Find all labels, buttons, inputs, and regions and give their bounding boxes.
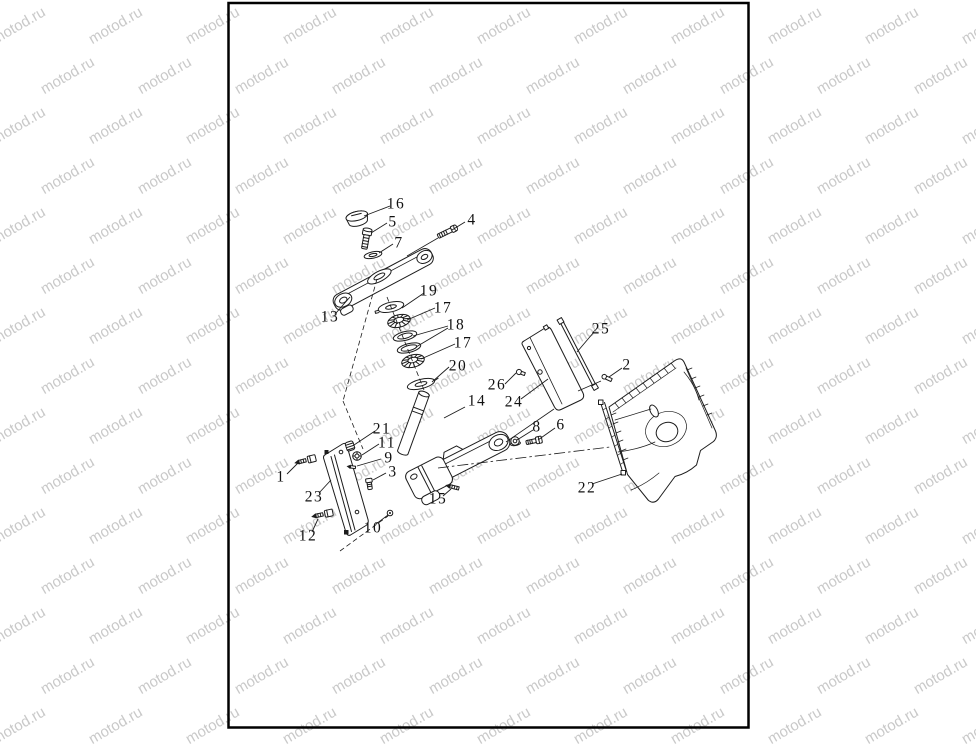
part-3 [365, 478, 373, 490]
part-label-22: 22 [578, 480, 597, 497]
part-label-14: 14 [468, 393, 487, 410]
exploded-diagram: 1654713191718172025226241486211193123152… [0, 0, 976, 732]
part-label-6: 6 [556, 417, 565, 434]
part-label-4: 4 [467, 212, 476, 229]
part-7 [364, 250, 383, 260]
part-12 [310, 509, 333, 520]
part-label-5: 5 [388, 214, 397, 231]
part-label-24: 24 [505, 394, 524, 411]
callout-leader-line [432, 367, 449, 382]
part-label-12: 12 [299, 528, 318, 545]
part-label-26: 26 [488, 377, 507, 394]
part-4 [437, 224, 459, 239]
callout-leader-line [609, 368, 622, 377]
part-label-10: 10 [364, 520, 383, 537]
callout-leader-line [407, 308, 435, 320]
part-label-18: 18 [447, 317, 466, 334]
part-label-15: 15 [429, 491, 448, 508]
part-labels-layer: 1654713191718172025226241486211193123152… [276, 196, 631, 545]
part-label-20: 20 [449, 358, 468, 375]
part-label-1: 1 [276, 469, 285, 486]
callout-leader-line [444, 407, 465, 418]
part-label-25: 25 [592, 321, 611, 338]
part-24 [522, 325, 584, 410]
callout-leader-line [287, 463, 298, 474]
part-label-13: 13 [321, 309, 340, 326]
part-6 [525, 436, 542, 446]
part-label-17: 17 [434, 300, 453, 317]
part-16 [345, 209, 370, 228]
callout-leader-line [505, 373, 516, 384]
callout-leader-line [521, 379, 548, 399]
part-label-23: 23 [305, 489, 324, 506]
part-10 [387, 510, 393, 516]
part-label-19: 19 [420, 283, 439, 300]
part-label-3: 3 [388, 464, 397, 481]
part-2 [601, 374, 612, 383]
callout-leader-line [357, 459, 381, 466]
callout-leader-line [362, 444, 379, 455]
part-17 [400, 352, 425, 370]
callout-leader-line [517, 430, 533, 440]
part-20 [406, 375, 439, 392]
part-label-7: 7 [394, 235, 403, 252]
part-5 [360, 227, 373, 249]
assembly-line [506, 409, 554, 442]
callout-leader-line [379, 244, 393, 253]
part-label-2: 2 [622, 357, 631, 374]
part-label-8: 8 [532, 419, 541, 436]
callout-leader-line [373, 473, 386, 480]
part-8 [509, 436, 520, 446]
part-14 [397, 390, 430, 456]
part-19 [374, 299, 405, 315]
callout-leader-line [592, 474, 622, 484]
part-26 [516, 369, 526, 377]
part-22 [599, 359, 717, 502]
parts-layer [293, 209, 716, 535]
part-label-16: 16 [387, 196, 406, 213]
callout-leader-line [371, 223, 387, 233]
part-label-17: 17 [454, 335, 473, 352]
part-11 [353, 452, 362, 461]
